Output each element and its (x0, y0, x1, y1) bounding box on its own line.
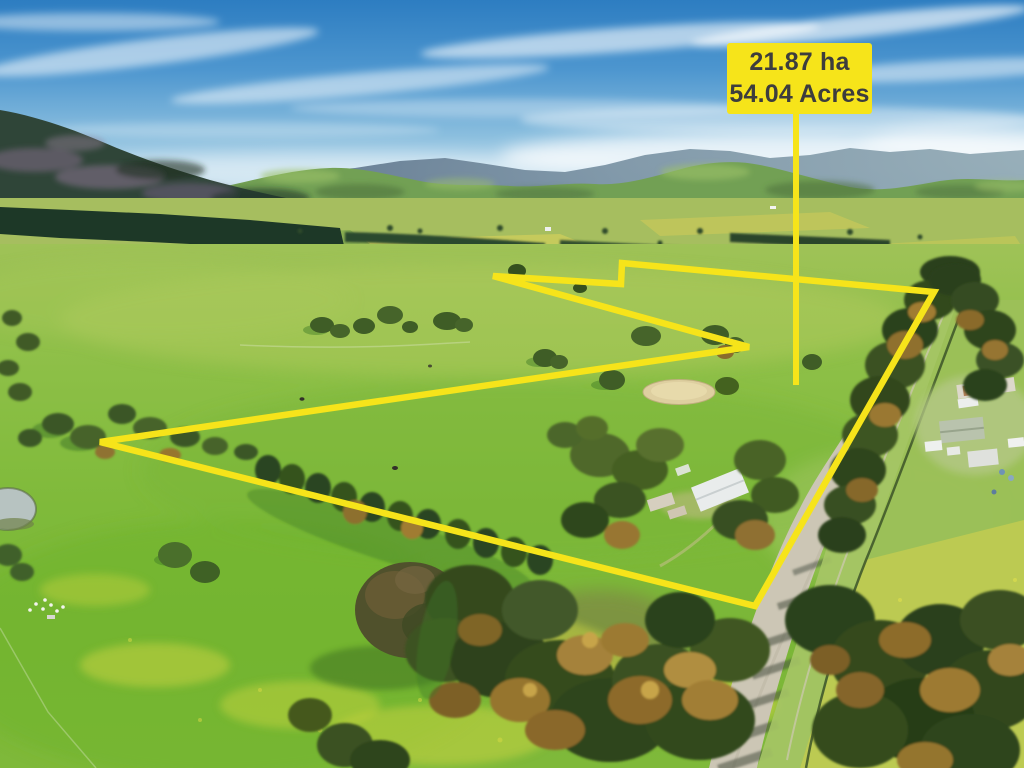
area-label: 21.87 ha 54.04 Acres (727, 43, 872, 114)
area-label-hectares: 21.87 ha (749, 47, 849, 79)
aerial-property-photo: 21.87 ha 54.04 Acres (0, 0, 1024, 768)
scene-canvas (0, 0, 1024, 768)
area-label-acres: 54.04 Acres (729, 79, 869, 111)
